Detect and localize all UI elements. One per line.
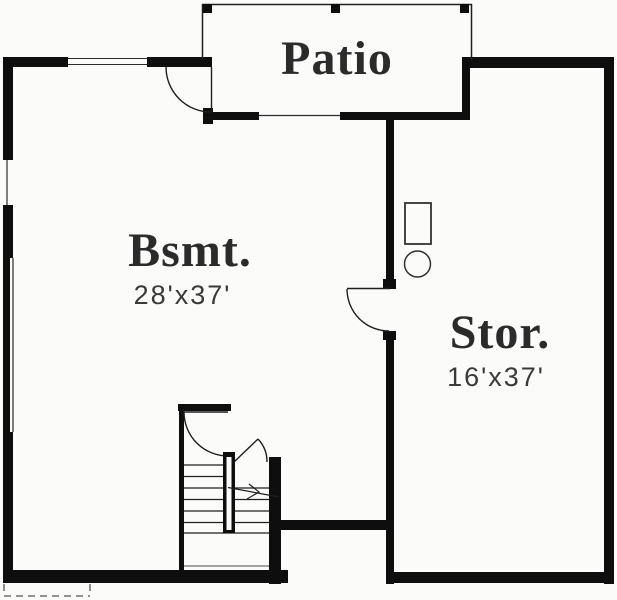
deck-outline-dashed — [4, 584, 90, 596]
wall-north-stor — [462, 57, 614, 68]
window-west — [3, 160, 13, 205]
wall-divider-lower — [386, 331, 394, 584]
water-heater-icon — [405, 203, 432, 277]
stair-treads — [184, 465, 269, 566]
wall-notch-bottom-middle — [273, 520, 392, 530]
basement-room-label: Bsmt. — [90, 222, 290, 278]
wall-patio-south-west-segment — [205, 112, 259, 120]
window-north-bsmt — [68, 58, 147, 65]
patio-room-label: Patio — [202, 6, 472, 110]
wall-patio-door-jamb — [203, 108, 213, 124]
wall-east — [604, 57, 614, 584]
wall-stairwell-top — [178, 404, 231, 411]
storage-room-label: Stor. — [410, 305, 590, 359]
floor-plan: Patio Bsmt. 28'x37' Stor. 16'x37' — [0, 0, 617, 600]
wall-south-bsmt — [3, 570, 288, 583]
storage-room-dimensions: 16'x37' — [410, 363, 582, 391]
stairwell-door-swing — [184, 412, 228, 456]
stair-stringer — [223, 452, 235, 533]
wall-divider-upper — [386, 113, 394, 289]
wall-stairwell-right — [269, 457, 281, 584]
wall-north-bsmt-west-segment — [5, 57, 68, 67]
understair-door-swing — [234, 439, 267, 462]
wall-south-stor — [386, 572, 614, 583]
storage-door-swing — [347, 289, 390, 332]
basement-room-dimensions: 28'x37' — [90, 280, 275, 310]
wall-divider-door-jamb-top — [383, 279, 396, 289]
wall-divider-door-jamb-bottom — [383, 331, 396, 340]
wall-west-upper — [3, 57, 13, 160]
wall-west-inner-channel — [10, 258, 13, 432]
wall-stairwell-left — [179, 404, 184, 571]
wall-patio-south-east-segment — [340, 112, 470, 120]
